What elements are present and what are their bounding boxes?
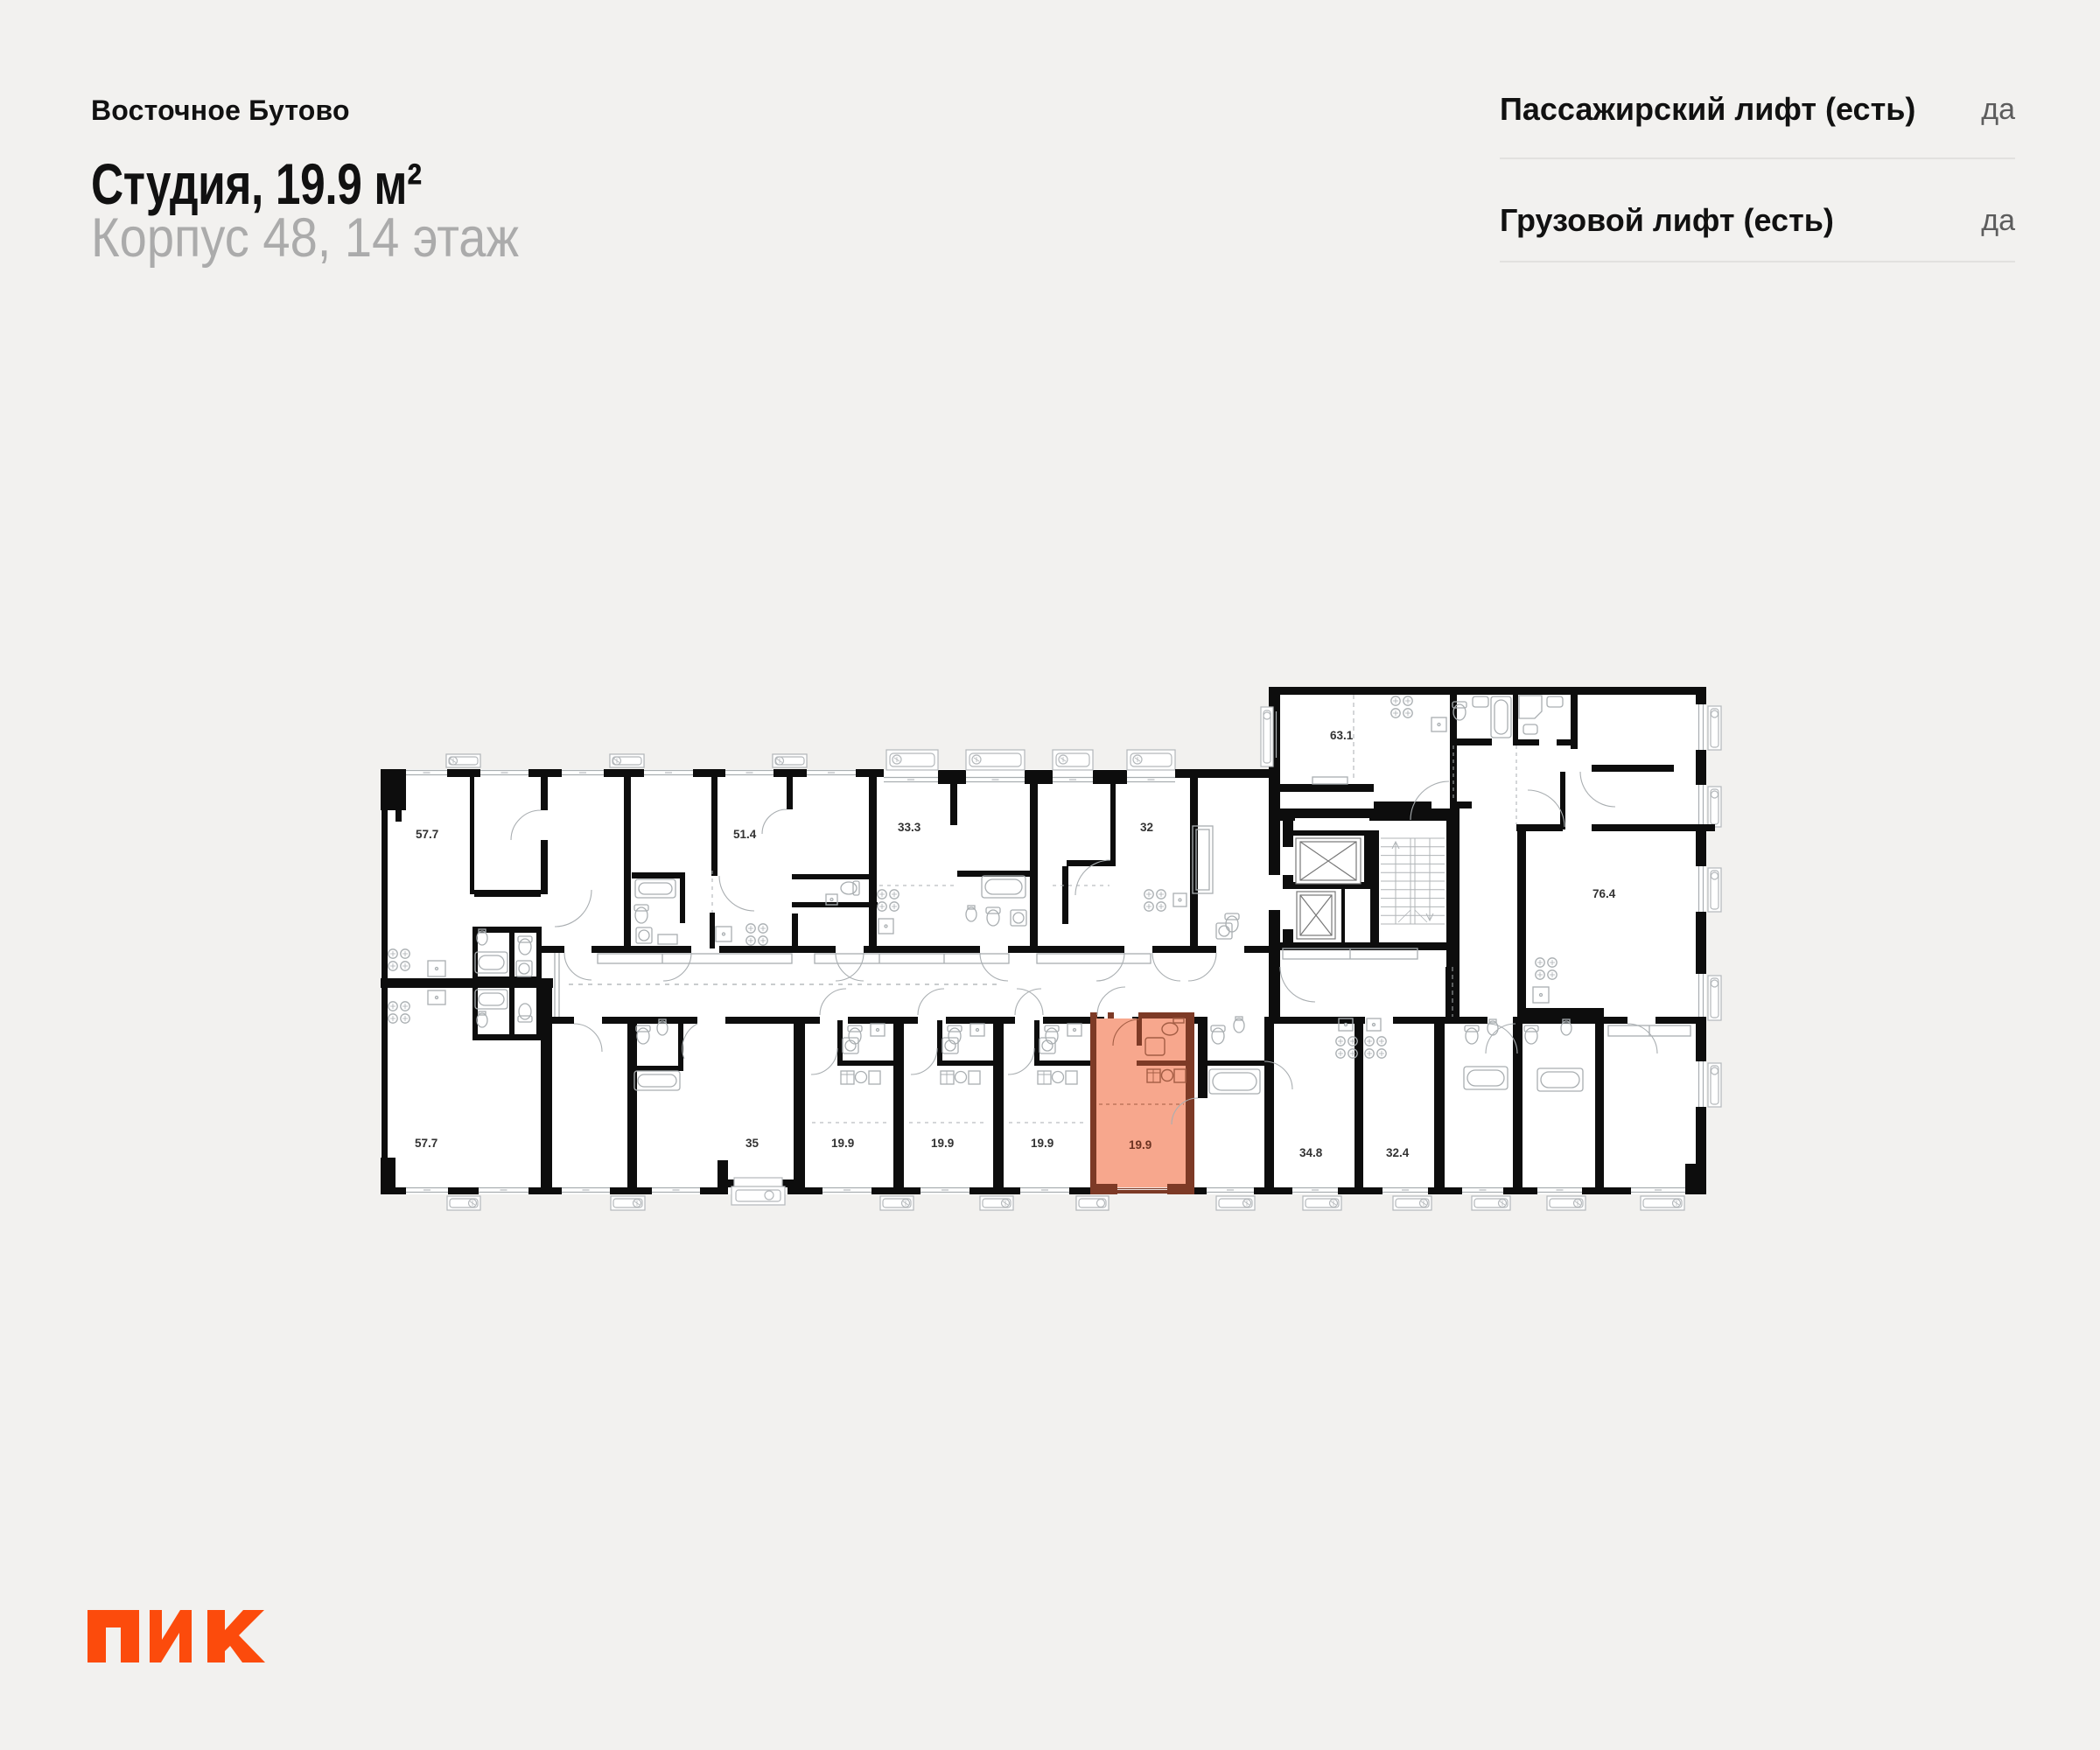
svg-text:32.4: 32.4: [1386, 1146, 1410, 1159]
svg-text:57.7: 57.7: [416, 828, 438, 841]
svg-text:76.4: 76.4: [1592, 887, 1616, 900]
svg-text:32: 32: [1140, 821, 1153, 834]
svg-text:63.1: 63.1: [1330, 729, 1354, 742]
svg-text:19.9: 19.9: [831, 1137, 854, 1150]
svg-text:51.4: 51.4: [733, 828, 757, 841]
svg-text:19.9: 19.9: [1031, 1137, 1053, 1150]
svg-text:57.7: 57.7: [415, 1137, 437, 1150]
svg-text:34.8: 34.8: [1299, 1146, 1323, 1159]
svg-text:19.9: 19.9: [1129, 1138, 1151, 1151]
svg-text:35: 35: [745, 1137, 759, 1150]
svg-text:19.9: 19.9: [931, 1137, 954, 1150]
svg-text:33.3: 33.3: [898, 821, 921, 834]
